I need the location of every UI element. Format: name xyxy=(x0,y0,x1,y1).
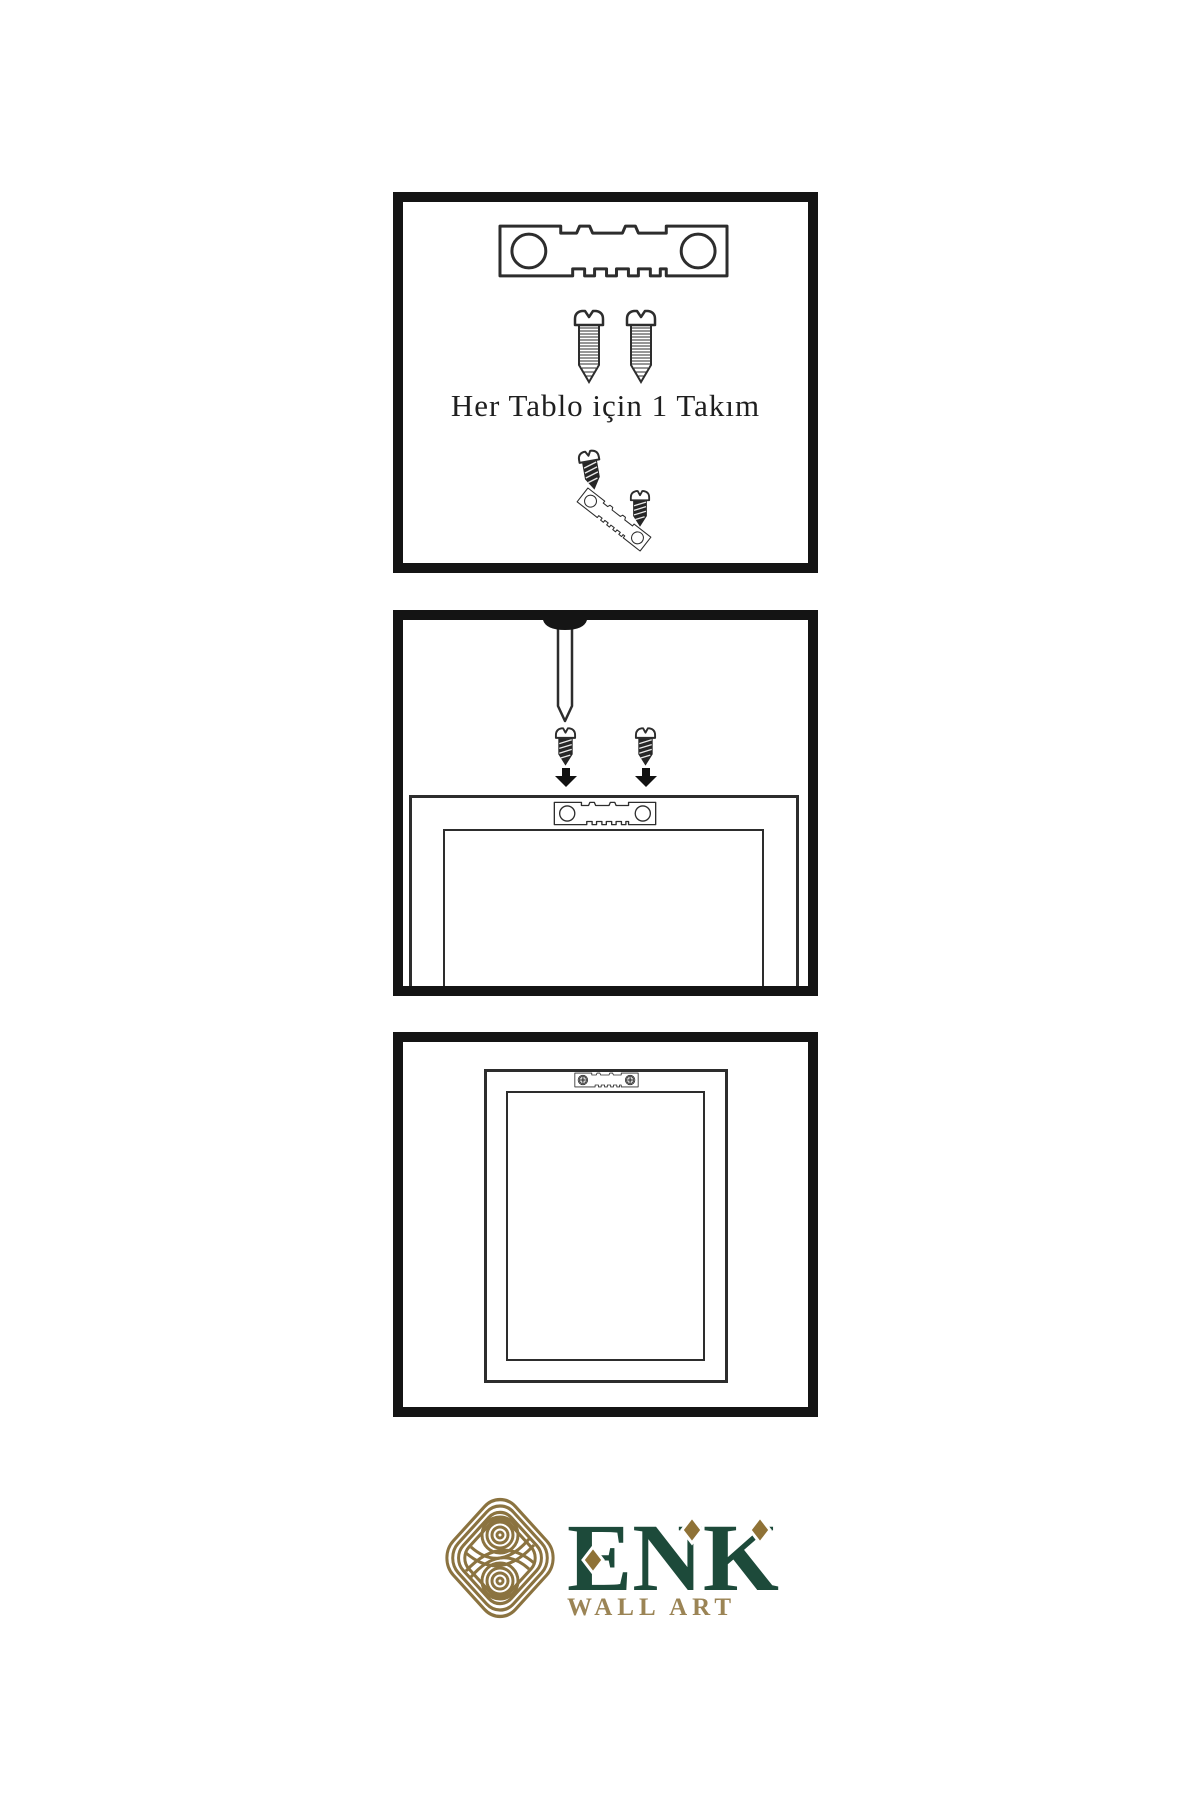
wall-nail-icon xyxy=(543,620,587,724)
frame-back-inner xyxy=(443,829,764,986)
down-arrow-icon xyxy=(635,768,657,787)
brand-wordmark: ENK xyxy=(566,1514,780,1598)
screwed-sawtooth-hanger-icon xyxy=(574,1071,639,1089)
kit-caption: Her Tablo için 1 Takım xyxy=(403,388,808,424)
kit-panel: Her Tablo için 1 Takım xyxy=(393,192,818,573)
hanging-instructions-sheet: Her Tablo için 1 Takım xyxy=(0,0,1200,1800)
brand-tagline: WALL ART xyxy=(567,1594,827,1622)
dark-screw-icon xyxy=(634,724,657,769)
enk-knot-logo xyxy=(438,1490,562,1626)
sawtooth-hanger-icon xyxy=(553,800,657,827)
screw-icon xyxy=(624,307,658,385)
down-arrow-icon xyxy=(555,768,577,787)
frame-inner xyxy=(506,1091,705,1361)
dark-screw-icon xyxy=(554,724,577,769)
screw-icon xyxy=(572,307,606,385)
dark-screw-icon xyxy=(576,447,607,493)
installation-panel xyxy=(393,610,818,996)
hung-frame-panel xyxy=(393,1032,818,1417)
sawtooth-hanger-icon xyxy=(497,223,730,279)
dark-screw-icon xyxy=(629,489,651,528)
